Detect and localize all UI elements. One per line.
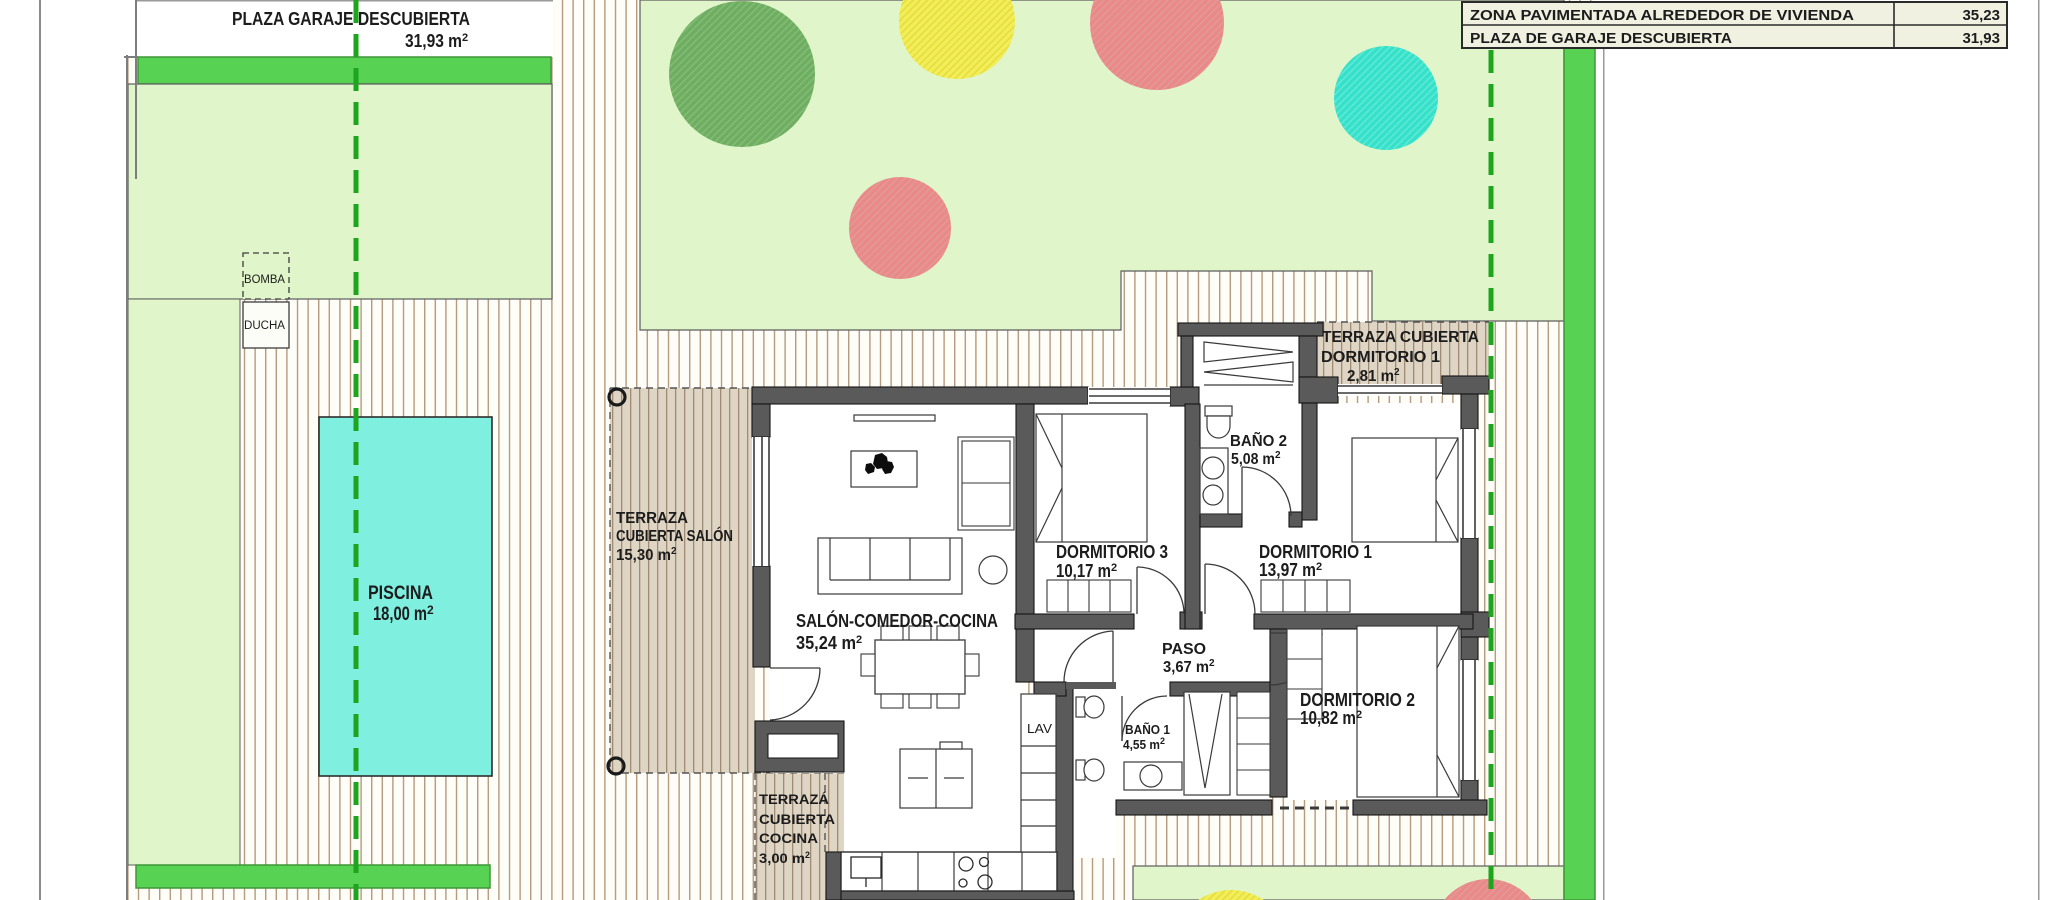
svg-text:2,81 m2: 2,81 m2 — [1347, 367, 1400, 385]
svg-text:SALÓN-COMEDOR-COCINA: SALÓN-COMEDOR-COCINA — [796, 610, 998, 631]
svg-text:DORMITORIO 3: DORMITORIO 3 — [1056, 542, 1168, 562]
svg-text:BAÑO 2: BAÑO 2 — [1230, 430, 1287, 450]
svg-text:DORMITORIO 1: DORMITORIO 1 — [1259, 542, 1372, 562]
svg-text:COCINA: COCINA — [759, 831, 818, 846]
svg-text:13,97 m2: 13,97 m2 — [1259, 560, 1322, 580]
svg-text:5,08 m2: 5,08 m2 — [1231, 450, 1281, 468]
svg-text:CUBIERTA SALÓN: CUBIERTA SALÓN — [616, 526, 733, 545]
svg-text:DORMITORIO 2: DORMITORIO 2 — [1300, 690, 1415, 710]
svg-text:4,55 m2: 4,55 m2 — [1123, 736, 1165, 752]
svg-text:LAV: LAV — [1027, 722, 1053, 736]
svg-text:35,24 m2: 35,24 m2 — [796, 633, 862, 653]
svg-text:CUBIERTA: CUBIERTA — [759, 812, 835, 827]
svg-text:3,67 m2: 3,67 m2 — [1163, 658, 1215, 676]
svg-text:35,23: 35,23 — [1962, 7, 2000, 24]
svg-text:31,93 m2: 31,93 m2 — [405, 31, 468, 51]
svg-text:ZONA PAVIMENTADA ALREDEDOR DE: ZONA PAVIMENTADA ALREDEDOR DE VIVIENDA — [1470, 8, 1855, 24]
svg-text:DUCHA: DUCHA — [244, 320, 285, 332]
svg-text:TERRAZA: TERRAZA — [616, 510, 688, 527]
svg-text:18,00 m2: 18,00 m2 — [373, 603, 434, 625]
svg-text:PISCINA: PISCINA — [368, 583, 433, 604]
svg-text:15,30 m2: 15,30 m2 — [616, 546, 677, 564]
svg-text:10,17 m2: 10,17 m2 — [1056, 561, 1117, 581]
svg-text:31,93: 31,93 — [1962, 30, 2000, 47]
svg-text:TERRAZÁ: TERRAZÁ — [759, 792, 829, 807]
svg-text:PLAZA GARAJE DESCUBIERTA: PLAZA GARAJE DESCUBIERTA — [232, 9, 470, 29]
svg-text:3,00 m2: 3,00 m2 — [759, 850, 810, 866]
svg-text:BAÑO 1: BAÑO 1 — [1125, 722, 1170, 737]
svg-text:PASO: PASO — [1162, 641, 1206, 658]
svg-text:BOMBA: BOMBA — [244, 274, 285, 286]
svg-text:DORMITORIO 1: DORMITORIO 1 — [1321, 349, 1440, 366]
svg-text:PLAZA DE GARAJE DESCUBIERTA: PLAZA DE GARAJE DESCUBIERTA — [1470, 31, 1733, 47]
svg-text:TERRAZA CUBIERTA: TERRAZA CUBIERTA — [1322, 329, 1479, 346]
svg-text:10,82 m2: 10,82 m2 — [1300, 708, 1362, 728]
